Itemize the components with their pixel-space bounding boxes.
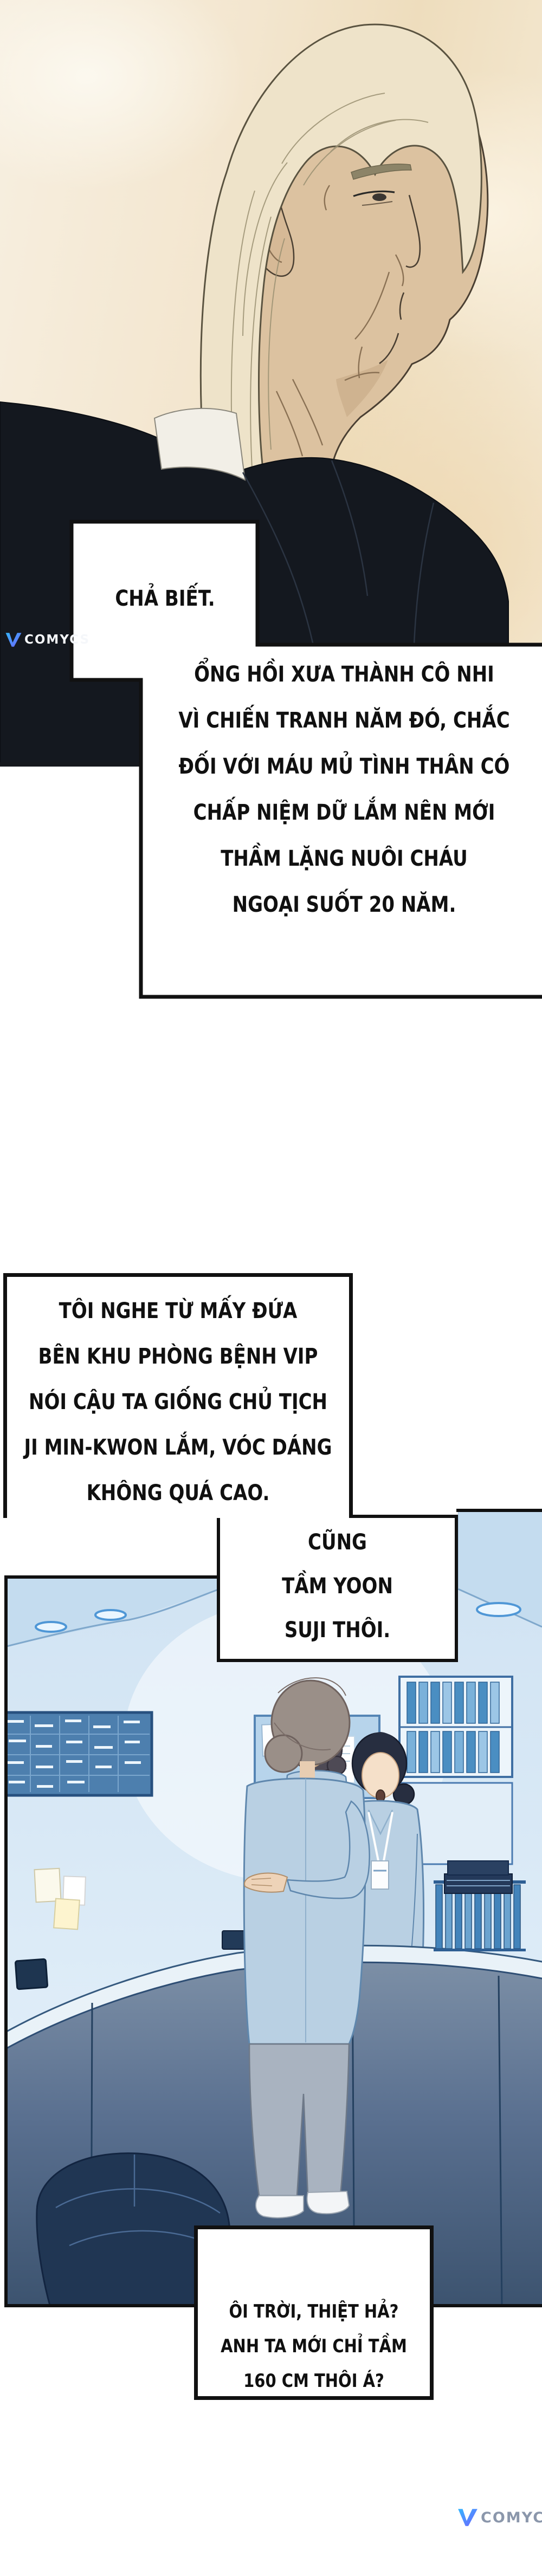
file-cabinet (399, 1677, 512, 1777)
neck (300, 1761, 315, 1779)
document-stack (444, 1861, 512, 1893)
panel-border (4, 1575, 8, 2307)
watermark-text: COMYCS (481, 2509, 542, 2526)
shoe-left (256, 2196, 304, 2218)
vcomycs-v-icon (4, 631, 23, 649)
watermark-text: COMYCS (24, 633, 90, 647)
comic-page: CHẢ BIẾT. ỔNG HỒI XƯA THÀNH CÔ NHI VÌ CH… (0, 0, 542, 2576)
hair-bun (265, 1735, 302, 1772)
schedule-board (4, 1712, 152, 1795)
speech-box-c-text: TÔI NGHE TỪ MẤY ĐỨA BÊN KHU PHÒNG BỆNH V… (7, 1288, 349, 1516)
shoe-right (307, 2191, 349, 2214)
panel-border (456, 1509, 542, 1512)
id-badge (371, 1861, 389, 1889)
gesturing-hand (244, 1873, 287, 1892)
speech-bubble-a: CHẢ BIẾT. (75, 585, 255, 613)
bubble-a-line: CHẢ BIẾT. (75, 582, 255, 615)
watermark-vcomycs-top: COMYCS (4, 631, 90, 649)
speech-box-d-text: CŨNG TẦM YOON SUJI THÔI. (220, 1521, 455, 1652)
desk-monitor (15, 1959, 47, 1989)
speech-box-e-text: ÔI TRỜI, THIỆT HẢ? ANH TA MỚI CHỈ TẦM 16… (198, 2294, 430, 2398)
watermark-vcomycs-bottom: COMYCS (456, 2506, 542, 2529)
panel-border (4, 1575, 218, 1579)
narration-box-b: ỔNG HỒI XƯA THÀNH CÔ NHI VÌ CHIẾN TRANH … (147, 652, 541, 928)
vcomycs-v-icon (456, 2506, 479, 2529)
